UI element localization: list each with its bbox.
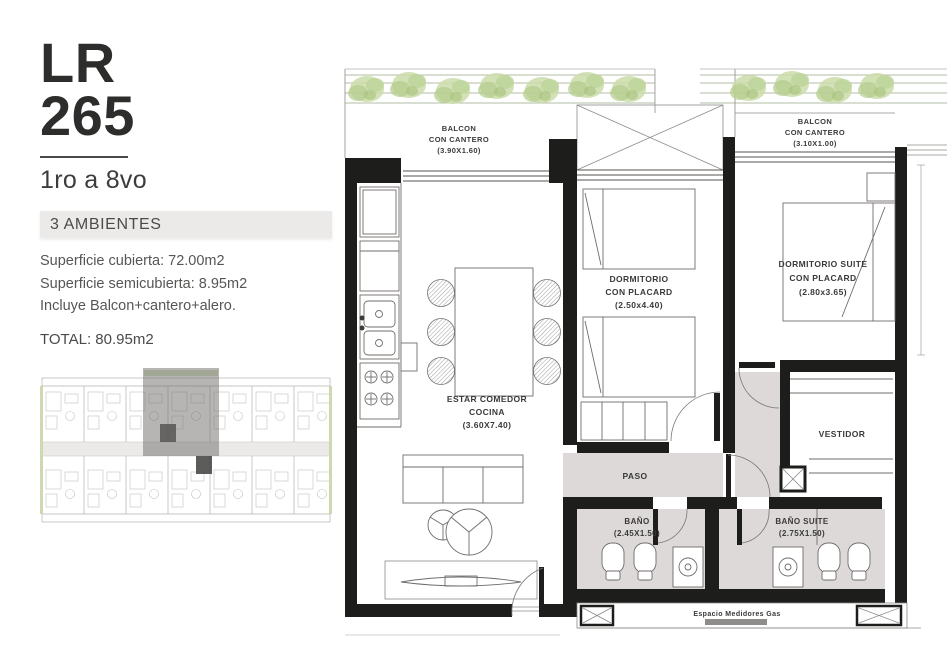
suite-label: DORMITORIO SUITE <box>779 259 868 269</box>
total-area: TOTAL: 80.95m2 <box>40 331 332 348</box>
svg-text:CON PLACARD: CON PLACARD <box>605 287 672 297</box>
svg-text:CON CANTERO: CON CANTERO <box>429 135 489 144</box>
dining-set <box>428 268 561 396</box>
tv-unit <box>385 561 537 599</box>
meter-box <box>705 619 767 625</box>
fridge <box>360 187 399 237</box>
bath-suite-vanity <box>773 547 803 587</box>
keyplan-highlight <box>143 368 219 456</box>
detail-line: Superficie cubierta: 72.00m2 <box>40 252 332 270</box>
keyplan-green-edge <box>329 386 332 514</box>
dining-table <box>455 268 533 396</box>
svg-text:COCINA: COCINA <box>469 407 505 417</box>
bath-suite-label: BAÑO SUITE <box>775 517 829 526</box>
bedroom-furniture <box>581 189 695 440</box>
bath-suite-dim: (2.75X1.50) <box>779 529 825 538</box>
svg-text:CON CANTERO: CON CANTERO <box>785 128 845 137</box>
bed-2 <box>583 317 695 397</box>
floor-plan: BALCON CON CANTERO (3.90X1.60) BALCON CO… <box>337 55 947 670</box>
stove <box>360 363 399 419</box>
detail-line: Superficie semicubierta: 8.95m2 <box>40 275 332 293</box>
detail-line: Incluye Balcon+cantero+alero. <box>40 297 332 315</box>
vestidor-closet <box>790 379 893 473</box>
shaft-x-left <box>581 606 613 625</box>
keyplan-core <box>196 456 212 474</box>
bath-vanity <box>673 547 703 587</box>
unit-code-line2: 265 <box>40 89 332 142</box>
balcony-right-dim: (3.10X1.00) <box>793 139 837 148</box>
planter-left <box>345 69 655 158</box>
living-dim: (3.60X7.40) <box>463 420 512 430</box>
bedroom-dim: (2.50x4.40) <box>615 300 663 310</box>
oven <box>360 241 399 291</box>
dimension-line <box>917 165 925 355</box>
planter-right <box>700 69 947 137</box>
meters-label: Espacio Medidores Gas <box>693 611 780 618</box>
building-key-plan <box>40 364 332 536</box>
suite-furniture <box>781 173 895 491</box>
svg-text:CON PLACARD: CON PLACARD <box>789 273 856 283</box>
planter-trees <box>348 72 646 104</box>
living-label: ESTAR COMEDOR <box>447 394 527 404</box>
area-details: Superficie cubierta: 72.00m2 Superficie … <box>40 252 332 314</box>
double-sink <box>360 295 400 359</box>
shaft-box <box>781 467 805 491</box>
keyplan-green-edge <box>40 386 43 514</box>
floors-label: 1ro a 8vo <box>40 166 332 195</box>
bed-1 <box>583 189 695 269</box>
suite-side-table <box>867 173 895 201</box>
bedroom-label: DORMITORIO <box>609 274 668 284</box>
paso-label: PASO <box>622 471 647 481</box>
bedroom-door <box>671 392 720 441</box>
balcony-right-label: BALCON <box>798 117 832 126</box>
bath-dim: (2.45X1.50) <box>614 529 660 538</box>
counter-box <box>401 343 417 371</box>
kitchen-fixtures <box>357 183 417 427</box>
coffee-tables <box>428 509 492 555</box>
placard <box>581 402 667 440</box>
alero-area <box>577 105 723 170</box>
windows <box>403 145 947 181</box>
vestidor-label: VESTIDOR <box>819 429 866 439</box>
bath-label: BAÑO <box>624 517 649 526</box>
balcony-left-dim: (3.90X1.60) <box>437 146 481 155</box>
unit-code-line1: LR <box>40 36 332 89</box>
sidebar: LR 265 1ro a 8vo 3 AMBIENTES Superficie … <box>40 36 332 536</box>
living-furniture <box>385 455 537 599</box>
sofa <box>403 455 523 503</box>
planter-trees <box>730 71 894 103</box>
entry-door <box>512 567 544 617</box>
balcony-left-label: BALCON <box>442 124 476 133</box>
ambientes-badge: 3 AMBIENTES <box>40 211 332 238</box>
suite-dim: (2.80x3.65) <box>799 287 847 297</box>
unit-code: LR 265 <box>40 36 332 142</box>
shaft-x-right <box>857 606 901 625</box>
divider-rule <box>40 156 128 158</box>
suite-hall-floor <box>735 372 780 497</box>
